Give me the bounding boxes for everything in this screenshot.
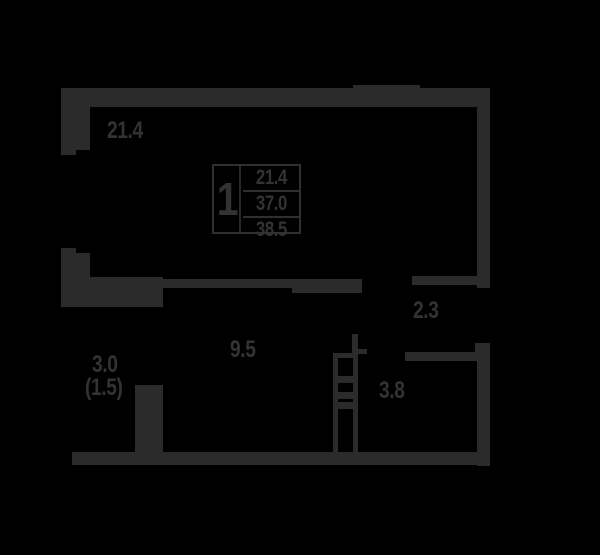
- unit-area-value-3: 38.5: [255, 218, 286, 242]
- label-living-room-area: 21.4: [107, 119, 143, 143]
- wall-left-lower: [61, 253, 90, 307]
- wall-right-lower: [477, 343, 490, 466]
- wall-right-upper: [477, 88, 490, 288]
- wall-mid-thin: [163, 279, 292, 288]
- wall-bottom: [72, 452, 490, 465]
- unit-rooms-count: 1: [216, 166, 241, 232]
- stair-rung-1: [333, 376, 358, 383]
- wall-hall-top: [412, 276, 477, 285]
- wall-left-upper: [61, 88, 90, 150]
- label-balcony-coeff-area: (1.5): [85, 376, 122, 400]
- wall-balcony-divider: [135, 385, 163, 452]
- stair-top-cap: [333, 353, 358, 358]
- stair-rung-3: [333, 402, 358, 409]
- unit-areas-column: 21.4 37.0 38.5: [243, 166, 299, 232]
- stair-rung-2: [333, 392, 358, 399]
- unit-area-row-1: 21.4: [243, 166, 299, 190]
- unit-area-value-2: 37.0: [255, 192, 286, 216]
- wall-top-notch: [353, 85, 420, 88]
- wall-mid-thick: [292, 279, 362, 293]
- window-sill-top: [61, 150, 76, 155]
- unit-area-row-3: 38.5: [243, 216, 299, 242]
- label-bathroom-area: 3.8: [379, 379, 405, 403]
- wall-bathroom-top: [405, 352, 477, 361]
- wall-top: [61, 88, 490, 107]
- unit-area-value-1: 21.4: [255, 166, 286, 190]
- label-kitchen-area: 9.5: [230, 338, 256, 362]
- label-hall-area: 2.3: [413, 299, 439, 323]
- wall-slab: [90, 277, 163, 307]
- unit-area-row-2: 37.0: [243, 190, 299, 216]
- unit-stat-table: 1 21.4 37.0 38.5: [212, 164, 301, 234]
- floor-plan: 21.4 2.3 9.5 3.0 (1.5) 3.8 1 21.4 37.0 3…: [0, 0, 600, 555]
